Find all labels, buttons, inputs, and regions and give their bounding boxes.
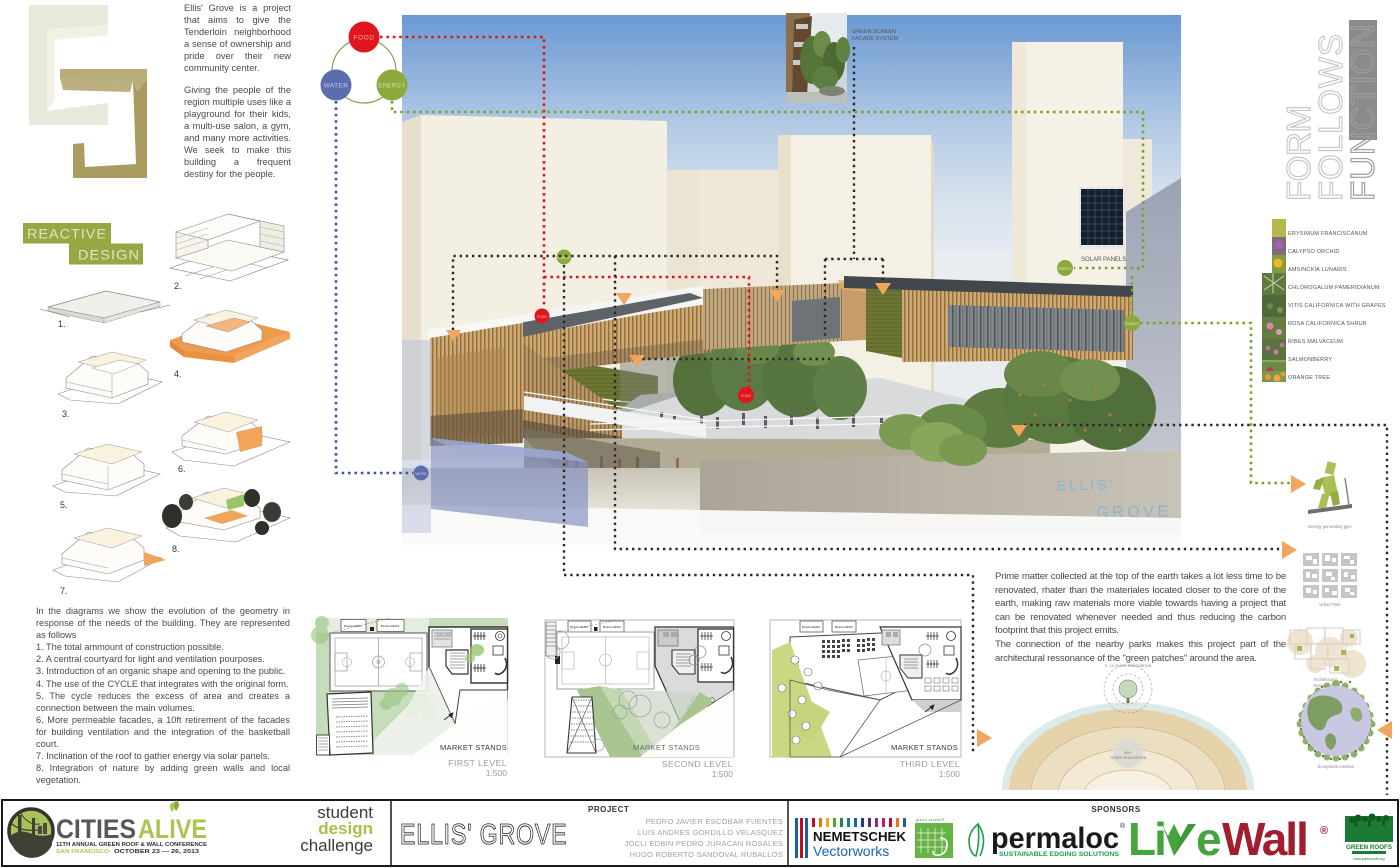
svg-text:Wall: Wall — [1222, 813, 1307, 865]
svg-text:DESIGN: DESIGN — [78, 247, 140, 263]
svg-text:ENERGY: ENERGY — [1125, 322, 1139, 326]
svg-text:WATER: WATER — [415, 472, 427, 476]
svg-text:VITIS CALIFORNICA WITH GRAPES: VITIS CALIFORNICA WITH GRAPES — [1288, 303, 1386, 309]
svg-text:green screen®: green screen® — [916, 818, 945, 822]
svg-text:®: ® — [1120, 822, 1126, 830]
svg-text:GREEN SCREEN: GREEN SCREEN — [852, 29, 896, 35]
svg-text:ENERGY: ENERGY — [378, 84, 405, 90]
svg-text:JOCLI EDBIN PEDRO JURACAN ROSA: JOCLI EDBIN PEDRO JURACAN ROSALES — [624, 839, 783, 848]
svg-text:RIBES MALVACEUM: RIBES MALVACEUM — [1288, 339, 1343, 345]
svg-text:5.: 5. — [60, 500, 68, 510]
svg-text:MARKET STANDS: MARKET STANDS — [440, 743, 507, 752]
svg-text:FOOD: FOOD — [353, 35, 374, 42]
svg-text:BLEACHERS: BLEACHERS — [835, 625, 853, 629]
svg-text:SUSTAINABLE EDGING SOLUTIONS: SUSTAINABLE EDGING SOLUTIONS — [999, 852, 1119, 858]
svg-text:BLEACHERS: BLEACHERS — [603, 625, 621, 629]
svg-text:2.: 2. — [174, 281, 182, 291]
svg-text:FACADE SYSTEM: FACADE SYSTEM — [852, 36, 899, 42]
svg-text:ELLIS': ELLIS' — [1056, 476, 1115, 493]
svg-text:1.: 1. — [58, 319, 66, 329]
svg-text:CALYPSO ORCHID: CALYPSO ORCHID — [1288, 249, 1340, 255]
svg-text:BLEACHERS: BLEACHERS — [802, 625, 820, 629]
svg-text:FOOD: FOOD — [537, 315, 547, 319]
svg-text:LUIS ANDRES GORDILLO VELASQUEZ: LUIS ANDRES GORDILLO VELASQUEZ — [638, 828, 783, 837]
svg-text:®: ® — [1320, 825, 1328, 837]
svg-text:THIRD LEVEL: THIRD LEVEL — [900, 759, 960, 769]
svg-text:ORANGE TREE: ORANGE TREE — [1288, 375, 1330, 381]
svg-text:ENERGY: ENERGY — [1058, 267, 1072, 271]
svg-text:BLEACHERS: BLEACHERS — [381, 624, 399, 628]
svg-text:BLEACHERS: BLEACHERS — [570, 625, 588, 629]
svg-text:BLEACHERS: BLEACHERS — [344, 624, 362, 628]
svg-text:ELLIS' GROVE: ELLIS' GROVE — [400, 817, 567, 850]
svg-text:challenge: challenge — [300, 836, 373, 855]
svg-text:YEARS RENOVATION: YEARS RENOVATION — [1110, 756, 1147, 760]
svg-text:e: e — [1196, 813, 1221, 865]
svg-text:MARKET STANDS: MARKET STANDS — [633, 743, 700, 752]
svg-text:Energy generating gym: Energy generating gym — [1308, 524, 1352, 529]
svg-text:OCTOBER 23 — 26, 2013: OCTOBER 23 — 26, 2013 — [114, 849, 199, 855]
svg-text:1:500: 1:500 — [486, 768, 508, 778]
svg-text:SECOND LEVEL: SECOND LEVEL — [662, 759, 733, 769]
svg-text:6.: 6. — [178, 464, 186, 474]
svg-text:11TH ANNUAL GREEN ROOF & WALL: 11TH ANNUAL GREEN ROOF & WALL CONFERENCE — [56, 842, 208, 848]
svg-text:REACTIVE: REACTIVE — [27, 226, 107, 242]
svg-text:CITIES: CITIES — [56, 814, 136, 844]
svg-text:3.: 3. — [62, 409, 70, 419]
svg-text:Li: Li — [1128, 813, 1165, 865]
svg-text:NEMETSCHEK: NEMETSCHEK — [813, 829, 907, 844]
svg-text:permaloc: permaloc — [991, 822, 1119, 855]
svg-text:FIRST LEVEL: FIRST LEVEL — [448, 758, 507, 768]
svg-text:ERYSIMUM FRANCISCANUM: ERYSIMUM FRANCISCANUM — [1288, 231, 1368, 237]
svg-text:SOLAR PANELS: SOLAR PANELS — [1081, 257, 1126, 263]
svg-text:SAN FRANCISCO:: SAN FRANCISCO: — [56, 849, 111, 855]
svg-text:WATER: WATER — [324, 83, 349, 90]
svg-text:MARKET STANDS: MARKET STANDS — [891, 743, 958, 752]
svg-text:PEDRO JAVIER ESCOBAR FUENTES: PEDRO JAVIER ESCOBAR FUENTES — [645, 817, 783, 826]
svg-text:ALIVE: ALIVE — [138, 814, 207, 844]
svg-text:1:500: 1:500 — [939, 769, 961, 779]
svg-text:Urban Park: Urban Park — [1319, 602, 1341, 607]
svg-text:4.: 4. — [174, 369, 182, 379]
svg-text:500+: 500+ — [1124, 751, 1132, 755]
svg-text:AMSINCKIA LUNARIS: AMSINCKIA LUNARIS — [1288, 267, 1347, 273]
svg-text:FUNCTION: FUNCTION — [1344, 23, 1381, 201]
svg-text:8.: 8. — [172, 544, 180, 554]
svg-text:FOOD: FOOD — [741, 394, 751, 398]
svg-text:www.greenroofs.org: www.greenroofs.org — [1353, 857, 1384, 861]
svg-text:1:500: 1:500 — [712, 769, 734, 779]
svg-text:HUGO ROBERTO SANDOVAL RUBALLOS: HUGO ROBERTO SANDOVAL RUBALLOS — [630, 850, 783, 859]
svg-text:Vectorworks: Vectorworks — [813, 843, 889, 859]
svg-text:SALMONBERRY: SALMONBERRY — [1288, 357, 1332, 363]
svg-text:7.: 7. — [60, 586, 68, 596]
svg-text:ROSA CALIFORNICA SHRUB: ROSA CALIFORNICA SHRUB — [1288, 321, 1367, 327]
svg-text:PROJECT: PROJECT — [588, 805, 629, 814]
svg-text:GREEN ROOFS: GREEN ROOFS — [1346, 844, 1393, 851]
svg-text:Ecosystem creation: Ecosystem creation — [1318, 764, 1355, 769]
svg-text:CHLOROGALUM PAMERIDIANUM: CHLOROGALUM PAMERIDIANUM — [1288, 285, 1380, 291]
